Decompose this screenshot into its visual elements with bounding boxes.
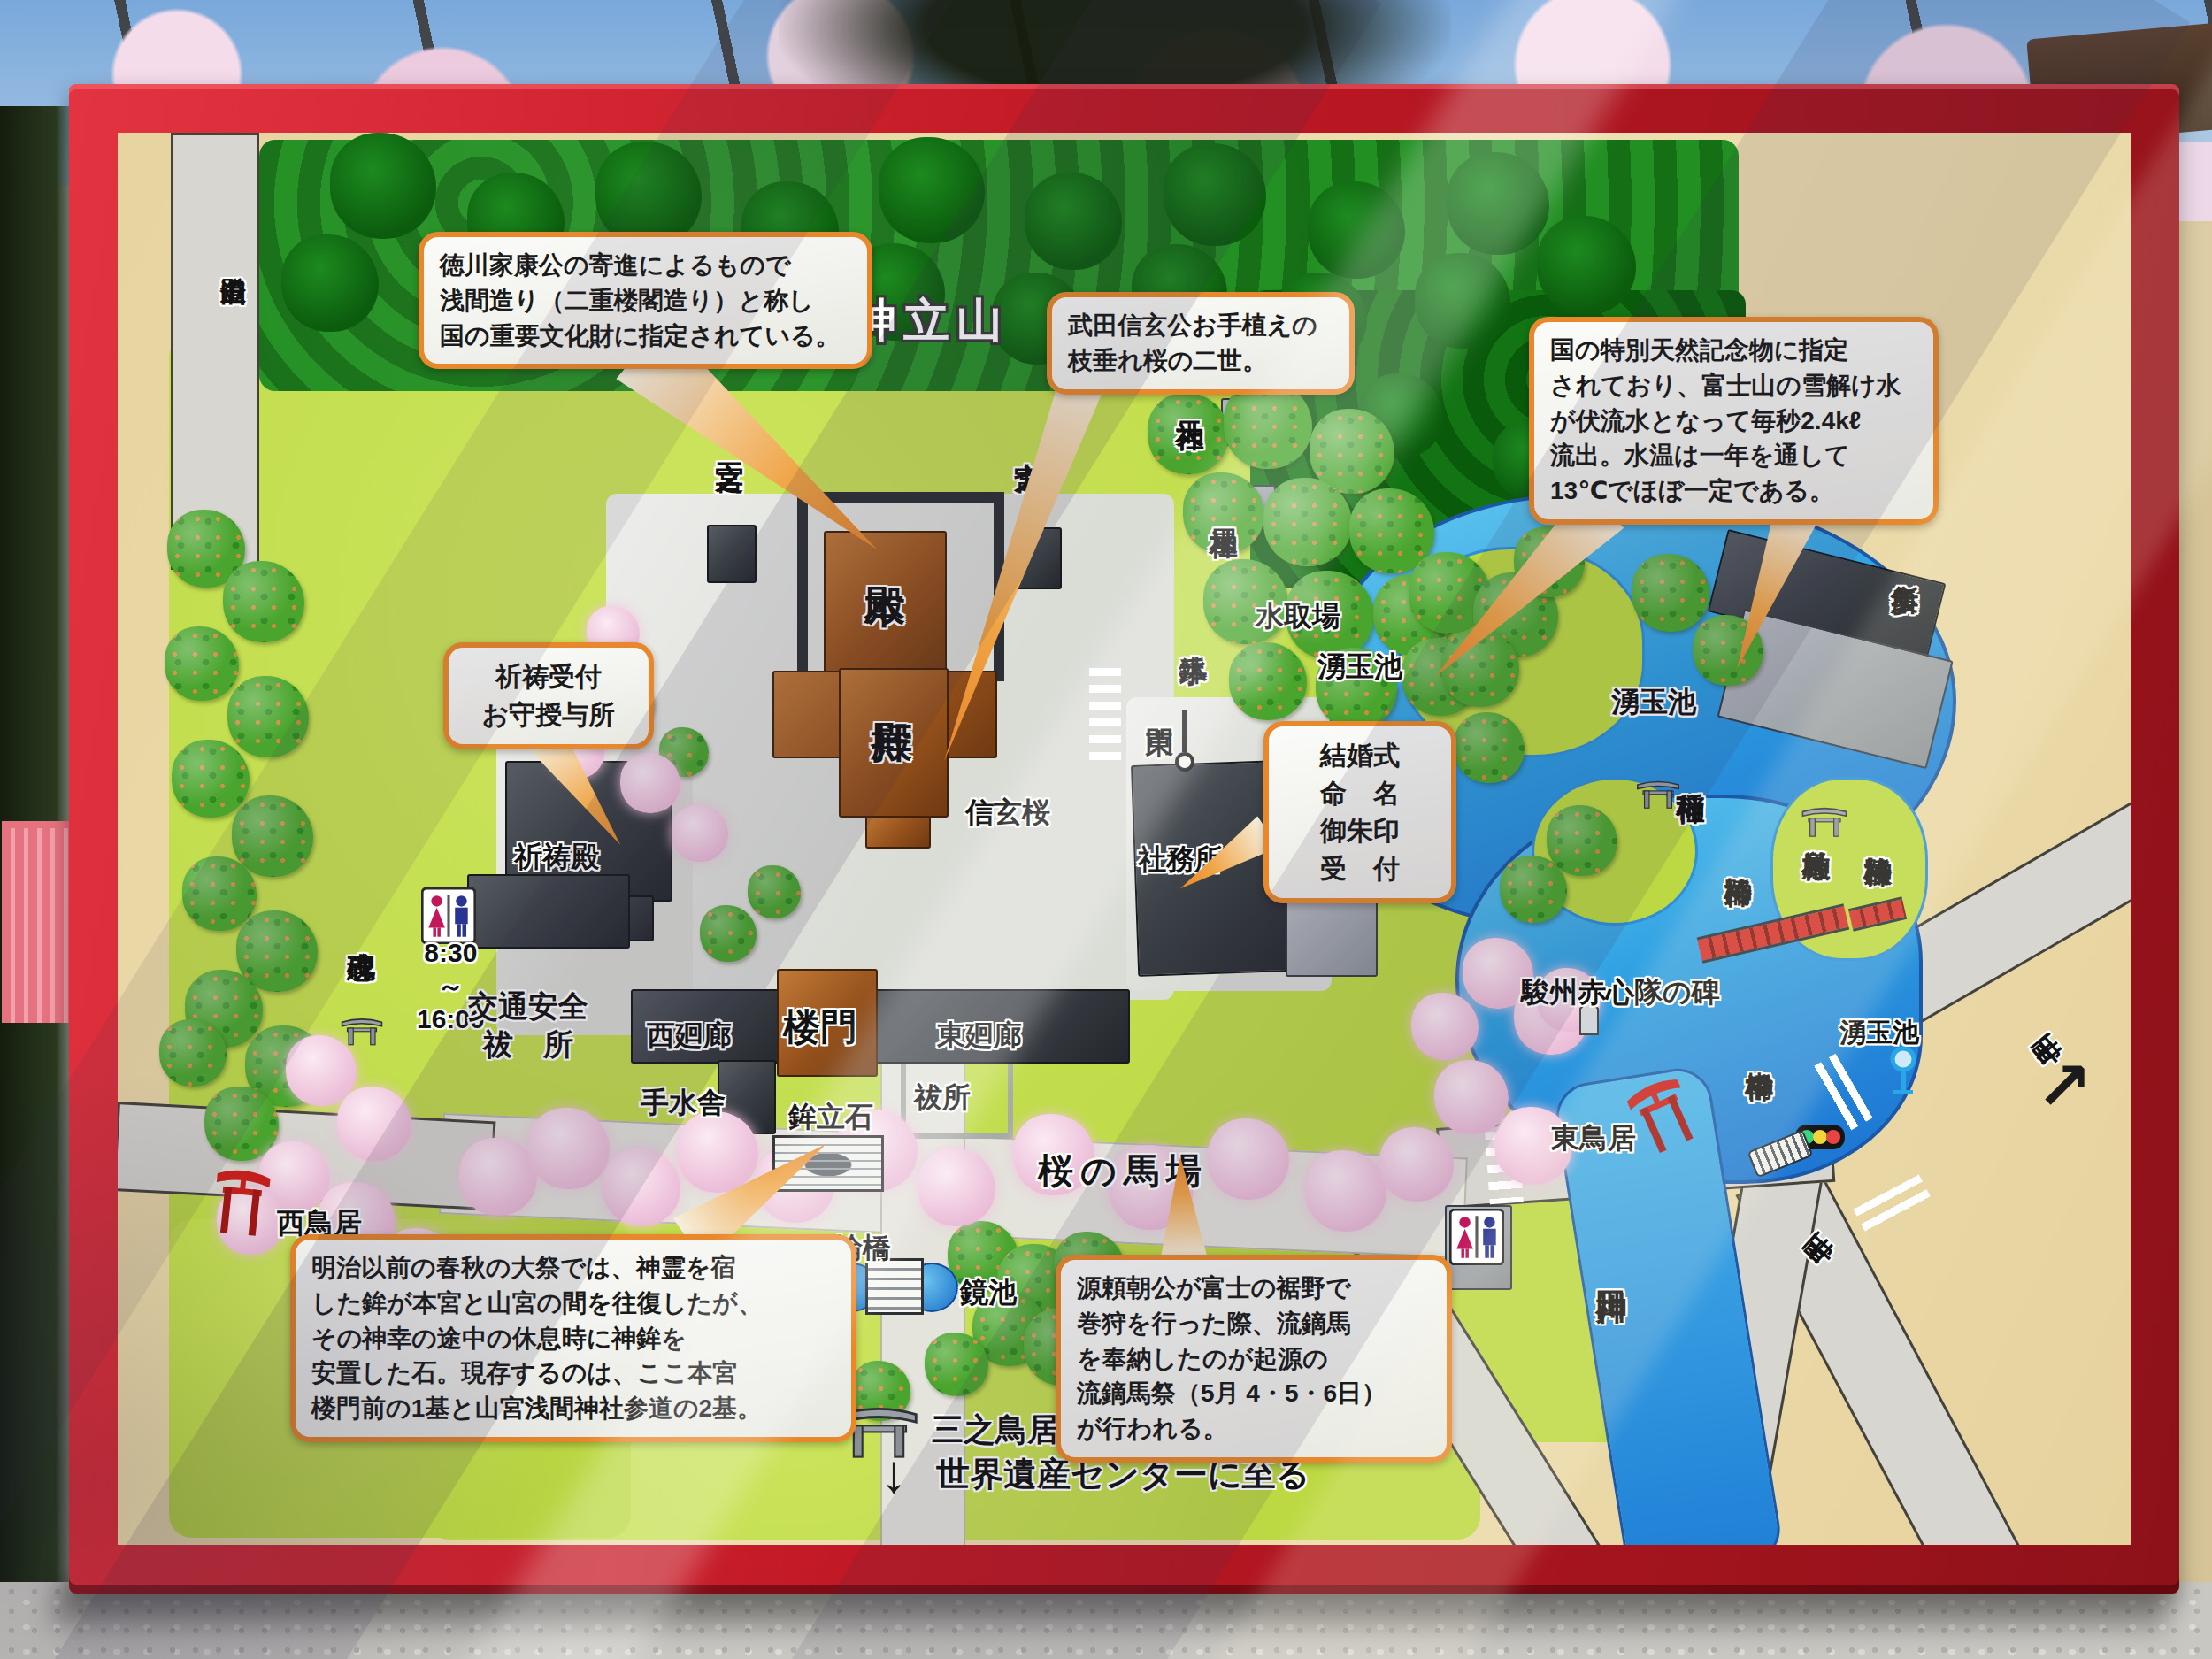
yabusame-callout: 源頼朝公が富士の裾野で 巻狩を行った際、流鏑馬 を奉納したのが起源の 流鏑馬祭（…: [1056, 1255, 1452, 1463]
tree: [748, 865, 801, 918]
tree: [879, 137, 985, 243]
tree: [1454, 712, 1525, 783]
mountain-title: 神立山: [850, 292, 1010, 349]
sannomiya-building: [707, 525, 757, 583]
map-label: 湧玉池: [1839, 1016, 1919, 1049]
tree: [620, 753, 680, 813]
tree: [1411, 993, 1479, 1060]
signboard-photo: ↗↓ 旧登山道三之宮七之宮本殿拝殿信玄桜天神社水屋神社手水鉢東門水取場湧玉池社務…: [0, 0, 2212, 1659]
map-label: 交通安全 祓 所: [468, 987, 588, 1063]
tree: [1434, 1060, 1509, 1134]
pink-fence: [2, 821, 69, 1023]
map-label: 湧玉池: [1611, 684, 1696, 719]
tree: [528, 1108, 610, 1189]
tokugawa-callout: 徳川家康公の寄進によるもので 浅間造り（二重楼閣造り）と称し 国の重要文化財に指…: [419, 232, 872, 369]
tree: [1229, 642, 1307, 720]
hokotateishi-callout: 明治以前の春秋の大祭では、神霊を宿 した鉾が本宮と山宮の間を往復したが、 その神…: [290, 1234, 856, 1442]
map-label: 祓所: [914, 1079, 971, 1115]
map-label: 東廻廊: [937, 1018, 1022, 1053]
map-label: 西廻廊: [647, 1018, 732, 1053]
tree: [677, 1111, 758, 1193]
chozubachi-marker-icon: [1182, 710, 1187, 752]
tree: [223, 561, 304, 642]
map-surface: ↗↓ 旧登山道三之宮七之宮本殿拝殿信玄桜天神社水屋神社手水鉢東門水取場湧玉池社務…: [118, 133, 2131, 1545]
kotsu-anzen-building: [467, 874, 630, 949]
kito-uketsuke-callout: 祈祷受付 お守授与所: [443, 642, 654, 749]
tree: [172, 740, 250, 818]
tree: [603, 1148, 680, 1226]
tree: [1208, 1118, 1289, 1200]
haiden-building: [839, 668, 949, 818]
tree: [1500, 856, 1567, 923]
west-torii-icon: [210, 1158, 274, 1240]
tree: [459, 1138, 537, 1216]
map-label: 湧玉池: [1317, 649, 1402, 684]
chukonhi-torii-icon: [341, 1014, 383, 1048]
toilet-baba-icon: [1449, 1209, 1504, 1265]
shingen-callout: 武田信玄公お手植えの 枝垂れ桜の二世。: [1047, 292, 1355, 395]
arrow-northeast-icon: ↗: [2036, 1053, 2093, 1120]
tree: [1025, 173, 1122, 270]
tree: [232, 795, 313, 877]
old-trail-road: [171, 133, 259, 570]
map-label: 信玄桜: [965, 795, 1050, 830]
map-label: 祈祷殿: [514, 839, 599, 874]
inari-torii-icon: [1634, 779, 1682, 809]
tree: [227, 676, 309, 757]
tree: [182, 856, 257, 931]
tree: [1164, 143, 1266, 246]
signboard-red-frame: ↗↓ 旧登山道三之宮七之宮本殿拝殿信玄桜天神社水屋神社手水鉢東門水取場湧玉池社務…: [69, 84, 2179, 1594]
arrow-down-icon: ↓: [880, 1448, 907, 1501]
bridge-deck: [865, 1258, 924, 1315]
map-label: 楼門: [783, 1004, 857, 1051]
tree: [1537, 216, 1636, 315]
map-label: 三十町: [2013, 1014, 2039, 1035]
tree: [330, 133, 436, 239]
tree: [1447, 152, 1549, 255]
tree: [700, 905, 757, 962]
tree: [672, 805, 728, 862]
tree: [1305, 1150, 1386, 1232]
map-label: 三之鳥居: [932, 1409, 1059, 1449]
goshuin-callout: 結婚式 命 名 御朱印 受 付: [1263, 721, 1456, 903]
map-label: 水取場: [1256, 598, 1340, 634]
stairs-icon: [1089, 668, 1121, 765]
shamusho-annex: [1286, 892, 1378, 977]
tree: [1308, 181, 1405, 279]
itsukushima-torii-icon: [1801, 805, 1848, 837]
map-label: 手水舎: [641, 1085, 726, 1120]
tree: [165, 626, 239, 701]
map-label: 東鳥居: [1551, 1120, 1636, 1156]
tree: [281, 234, 379, 332]
tree: [1263, 478, 1352, 566]
honden-building: [824, 531, 947, 676]
tree: [925, 1333, 988, 1396]
spring-icon: [1884, 1046, 1923, 1097]
map-label: 鏡池: [960, 1274, 1017, 1310]
map-label: 駿州赤心隊の碑: [1521, 974, 1720, 1010]
tree: [1148, 393, 1229, 474]
tree: [1183, 472, 1264, 554]
crosswalk-se-icon: [1853, 1174, 1933, 1237]
tree: [1415, 253, 1510, 349]
map-label: 鉾立石: [788, 1099, 873, 1134]
tree: [337, 1087, 411, 1161]
tree: [1632, 554, 1709, 632]
wakutama-callout: 国の特別天然記念物に指定 されており、富士山の雪解け水 が伏流水となって毎秒2.…: [1529, 317, 1939, 525]
tree: [1379, 1127, 1454, 1202]
tree: [918, 1148, 995, 1226]
tree: [1547, 805, 1617, 876]
tree: [159, 1019, 227, 1087]
